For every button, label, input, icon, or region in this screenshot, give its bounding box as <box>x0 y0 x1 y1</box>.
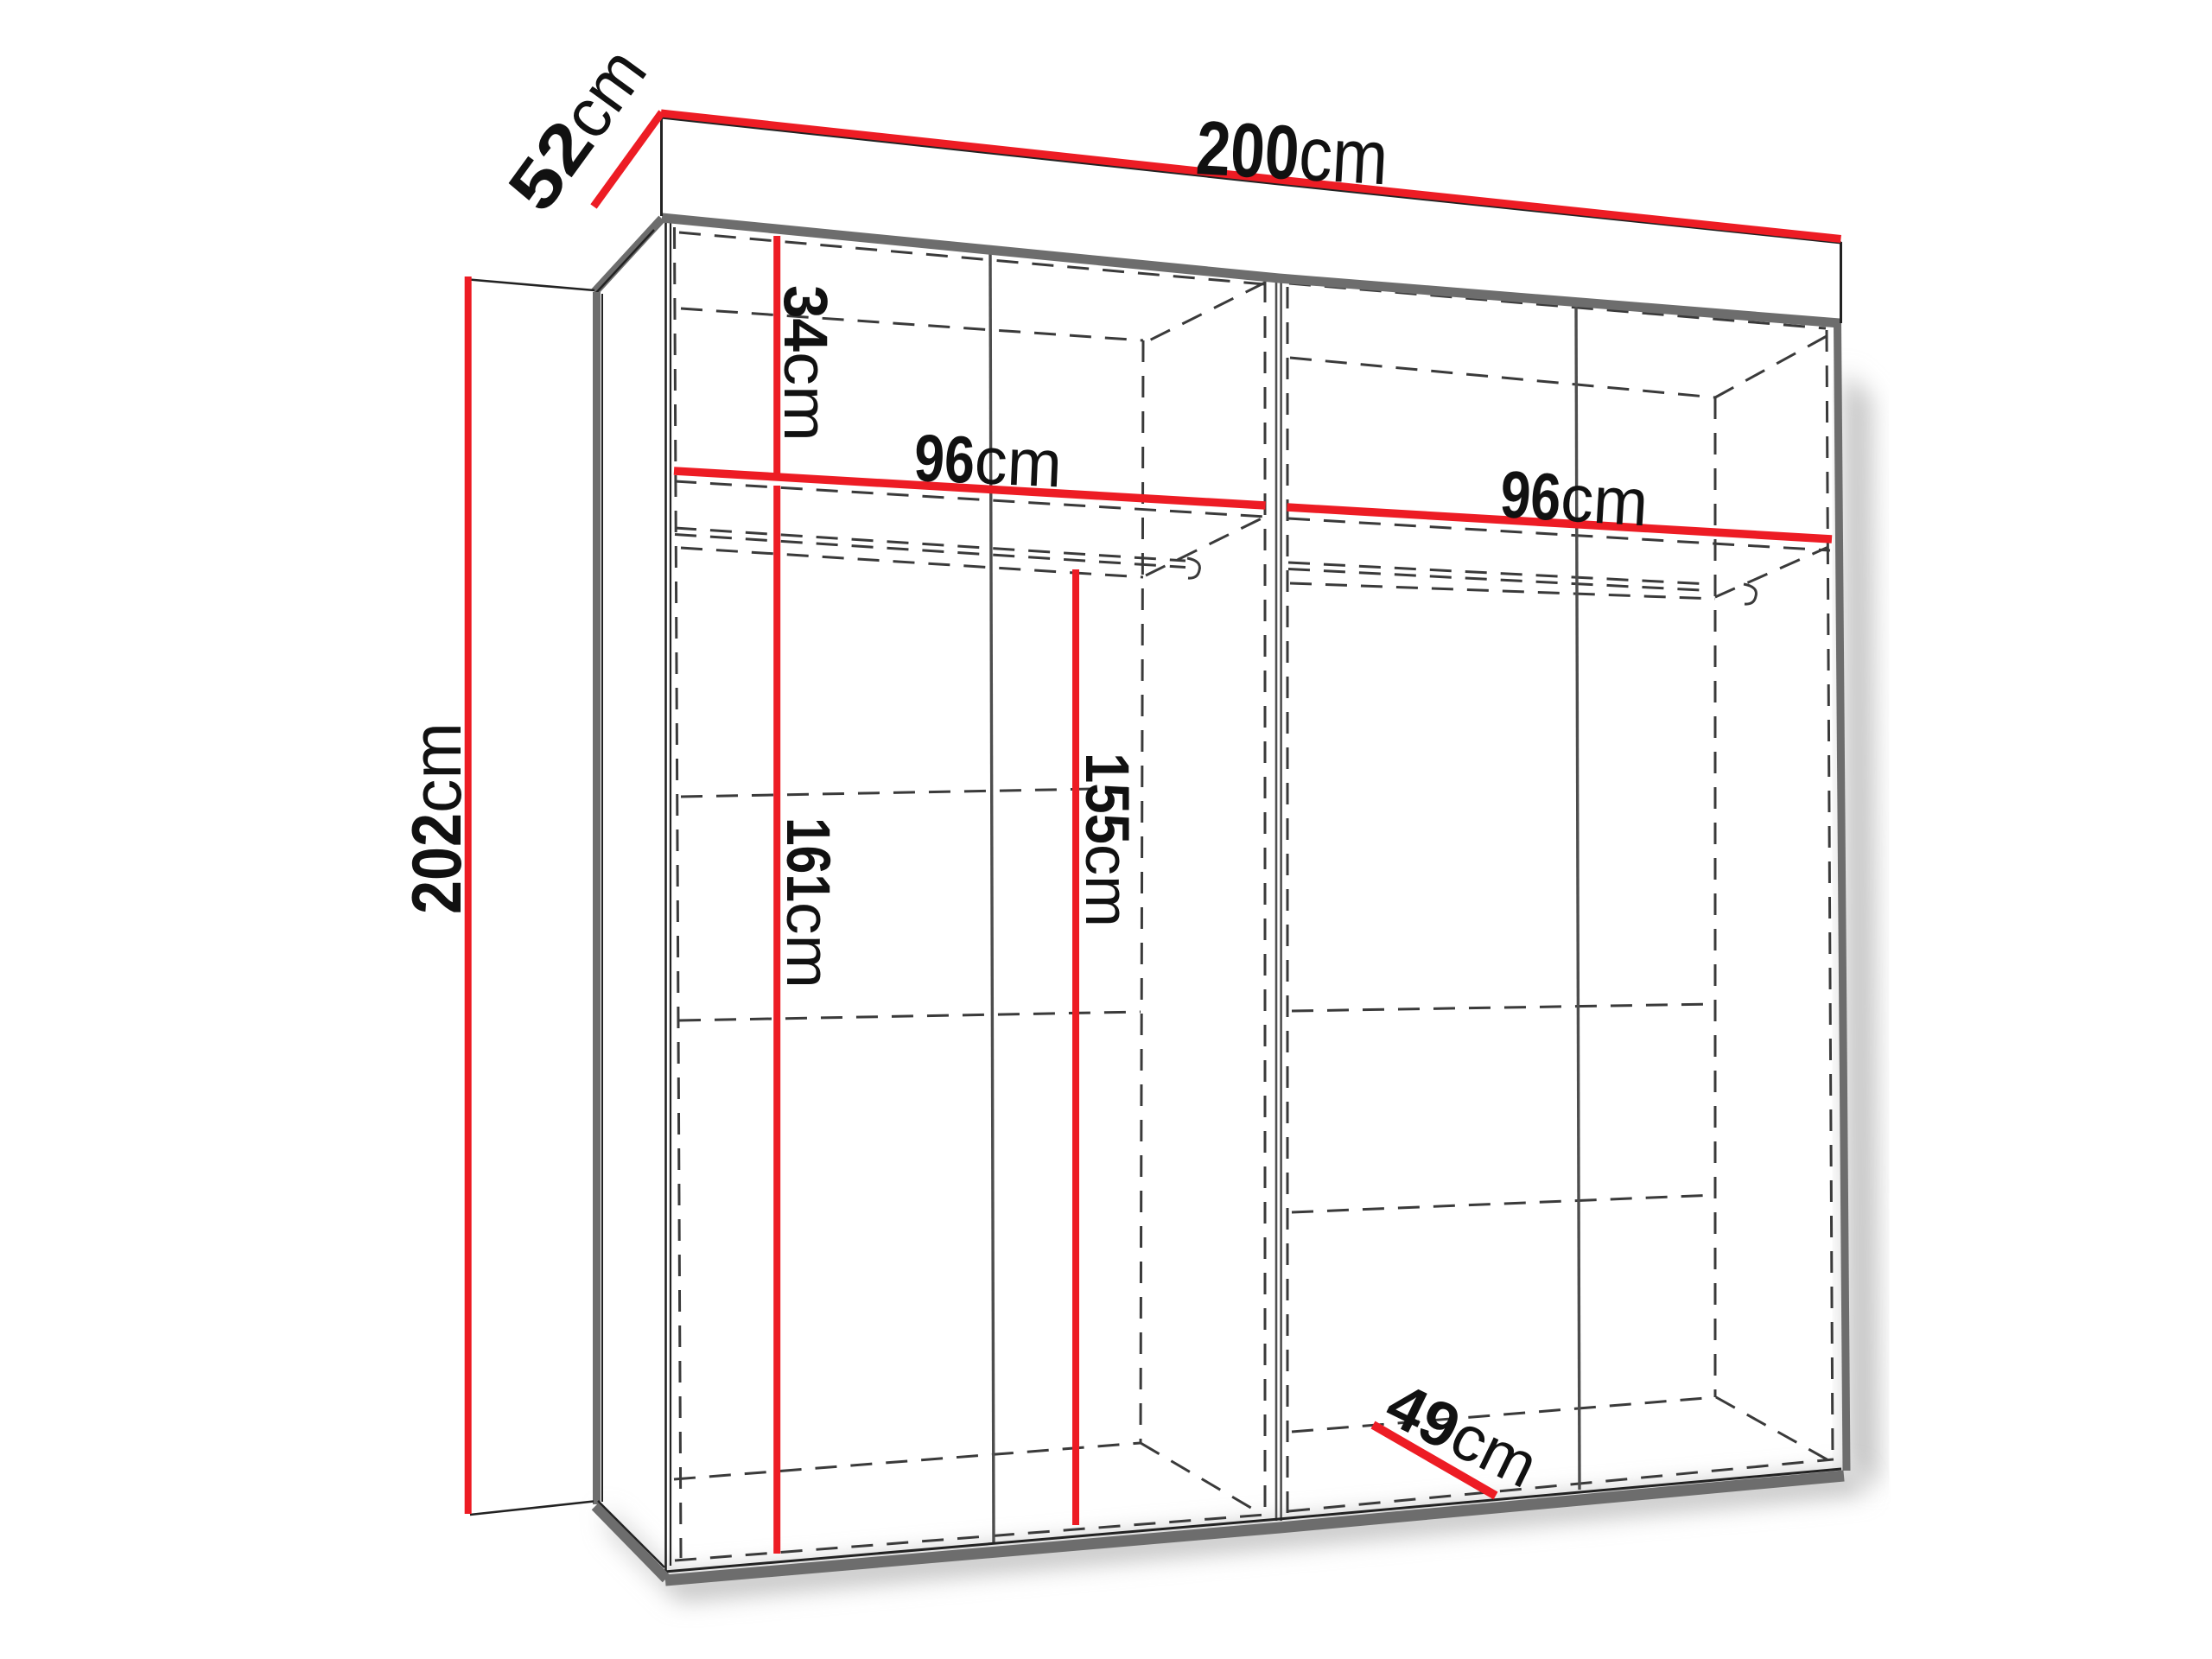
svg-text:202cm: 202cm <box>398 722 476 914</box>
svg-text:155cm: 155cm <box>1072 753 1141 927</box>
svg-text:34cm: 34cm <box>771 285 839 442</box>
svg-text:161cm: 161cm <box>773 817 842 988</box>
svg-text:96cm: 96cm <box>1498 457 1650 540</box>
svg-text:96cm: 96cm <box>912 421 1064 501</box>
svg-text:200cm: 200cm <box>1194 105 1390 200</box>
